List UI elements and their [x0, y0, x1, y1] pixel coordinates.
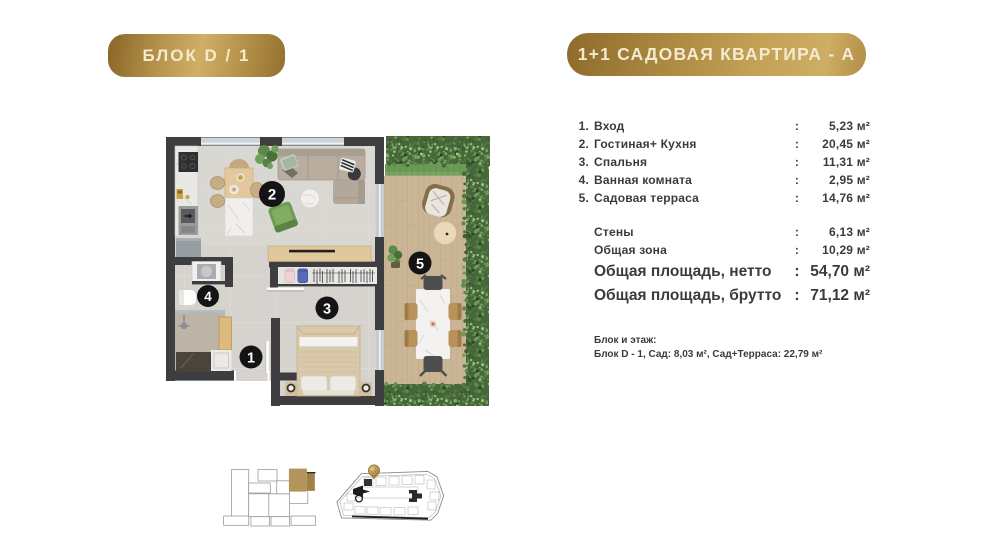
- svg-text:5: 5: [416, 256, 424, 272]
- svg-text:2: 2: [268, 187, 276, 204]
- svg-text:3: 3: [323, 301, 331, 317]
- svg-text:4: 4: [204, 289, 212, 304]
- svg-text:1: 1: [247, 350, 255, 366]
